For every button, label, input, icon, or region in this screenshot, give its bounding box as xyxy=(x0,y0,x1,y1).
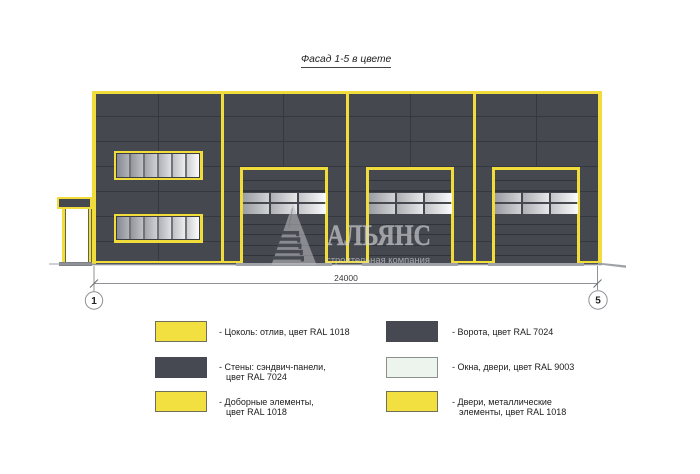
svg-text:АЛЬЯНС: АЛЬЯНС xyxy=(327,219,431,252)
svg-text:строительная компания: строительная компания xyxy=(326,255,430,266)
